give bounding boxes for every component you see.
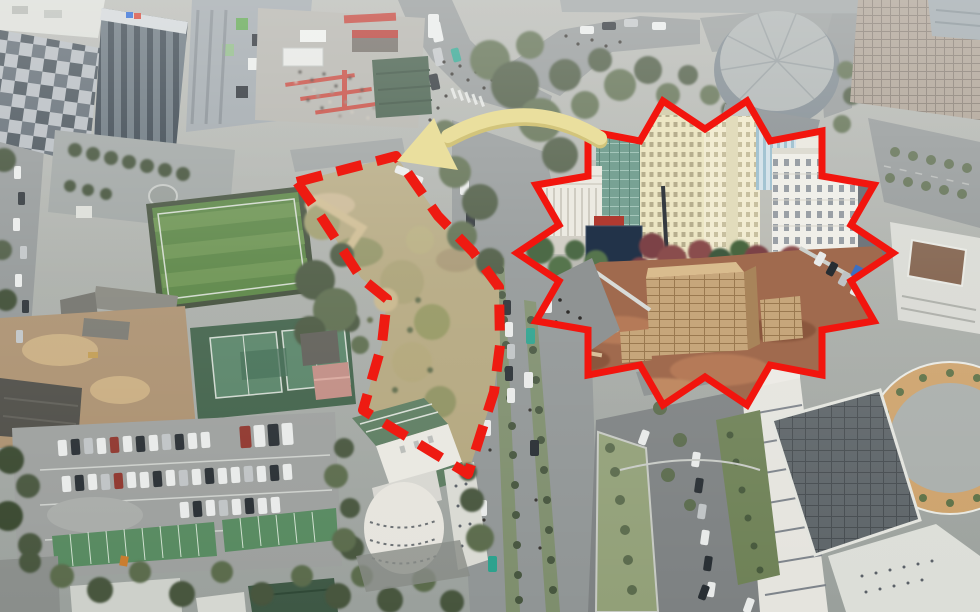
annotated-aerial-photo (0, 0, 980, 612)
